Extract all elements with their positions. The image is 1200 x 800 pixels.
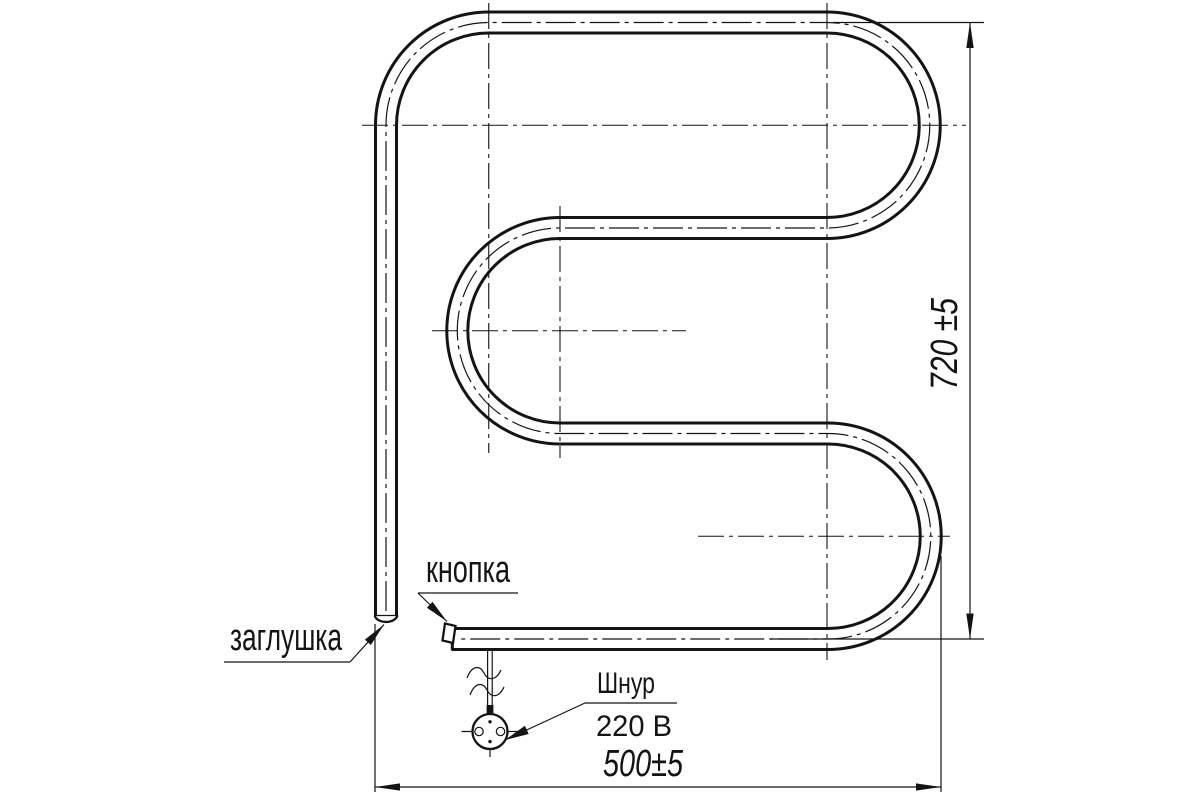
end-cap-dome [375, 616, 398, 622]
button-label: кнопка [426, 549, 511, 591]
plug-dot-top [488, 720, 491, 723]
cord-break-mark-1 [467, 668, 501, 679]
width-dim-arrow-left [375, 783, 400, 790]
cord-label: Шнур [597, 667, 655, 700]
plug-dot-bottom [488, 740, 491, 743]
button-leader-arrow [427, 602, 447, 622]
height-dim-arrow-bottom [966, 614, 973, 640]
cap-label: заглушка [230, 617, 343, 659]
button-callout: кнопка [418, 549, 518, 622]
tube-body [386, 23, 931, 640]
width-dimension: 500±5 [375, 743, 941, 791]
height-dim-text: 720 ±5 [924, 297, 966, 390]
width-dim-text: 500±5 [603, 743, 684, 785]
plug-icon [462, 712, 519, 757]
width-dim-arrow-right [916, 783, 941, 790]
power-button [443, 624, 456, 644]
height-dim-arrow-top [966, 23, 973, 49]
plug-prong-right [496, 727, 504, 735]
end-cap [375, 616, 398, 622]
technical-drawing-page: 720 ±5 500±5 заглушка кнопка [0, 0, 1200, 800]
towel-rail-drawing: 720 ±5 500±5 заглушка кнопка [0, 0, 1200, 800]
cap-callout: заглушка [224, 617, 384, 662]
cord-callout: Шнур 220 В [505, 667, 677, 743]
tube-outline-outer [386, 23, 931, 640]
plug-prong-left [475, 727, 483, 735]
tube-end-with-button [443, 624, 456, 651]
voltage-label: 220 В [596, 710, 672, 743]
extension-lines [375, 23, 984, 793]
power-cord [467, 649, 504, 714]
